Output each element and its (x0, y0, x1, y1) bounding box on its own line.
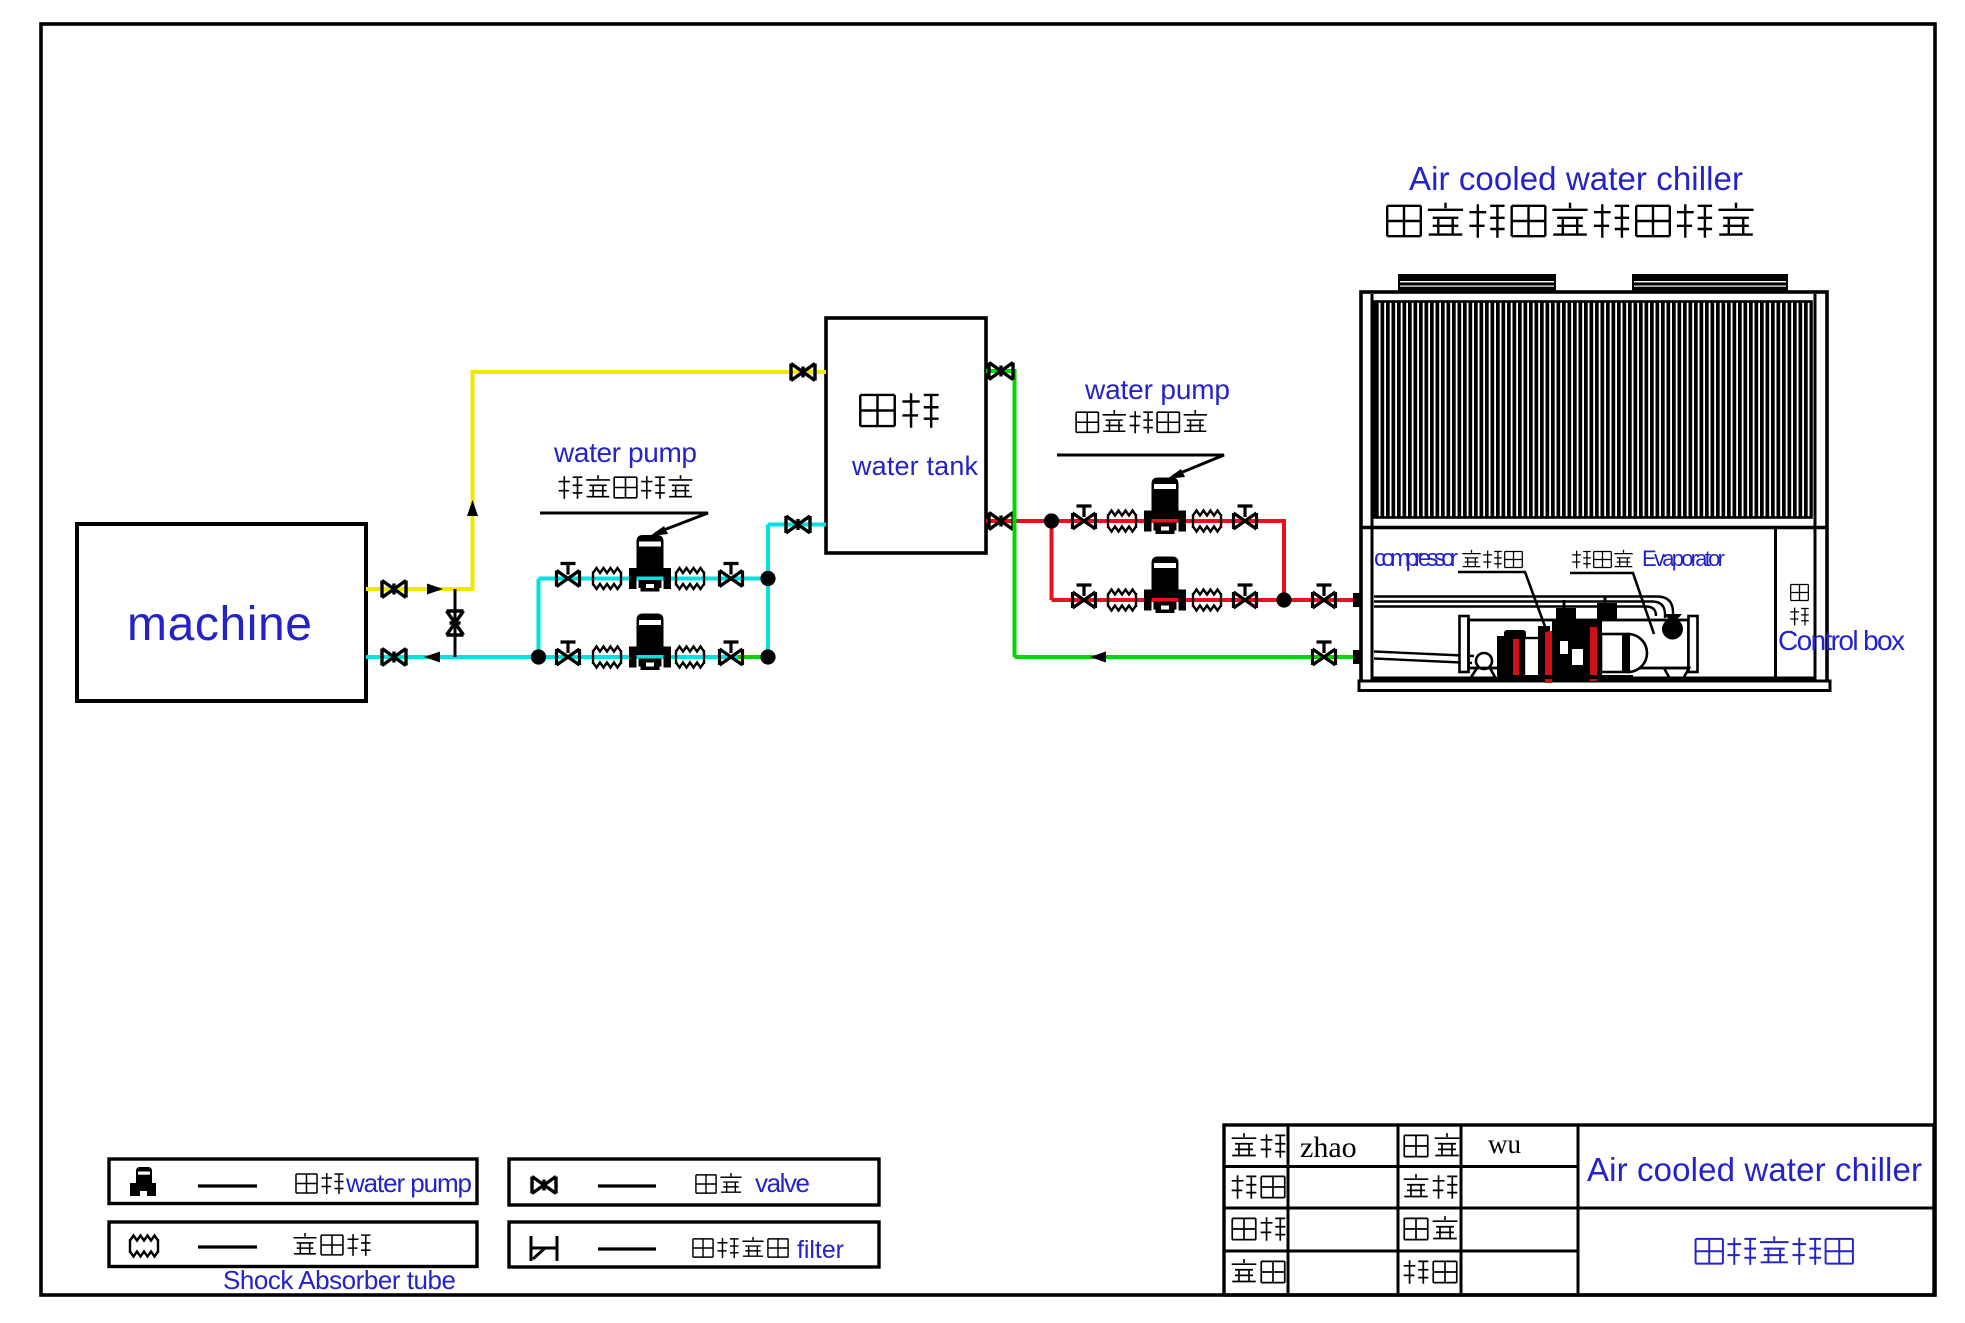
svg-text:water tank: water tank (851, 451, 979, 481)
svg-text:Shock Absorber tube: Shock Absorber tube (223, 1265, 456, 1295)
svg-text:Evaporator: Evaporator (1642, 546, 1725, 571)
svg-text:compressor: compressor (1374, 545, 1458, 572)
svg-text:Air cooled water chiller: Air cooled water chiller (1587, 1151, 1922, 1188)
svg-text:valve: valve (755, 1168, 810, 1198)
svg-text:water pump: water pump (553, 437, 697, 468)
svg-text:wu: wu (1488, 1129, 1521, 1159)
svg-text:machine: machine (127, 598, 312, 651)
svg-text:Air cooled water chiller: Air cooled water chiller (1409, 160, 1743, 197)
svg-text:filter: filter (797, 1236, 844, 1264)
svg-text:water pump: water pump (1084, 374, 1230, 405)
svg-text:zhao: zhao (1300, 1131, 1357, 1164)
svg-text:Control box: Control box (1778, 625, 1905, 656)
svg-text:water pump: water pump (345, 1168, 472, 1198)
